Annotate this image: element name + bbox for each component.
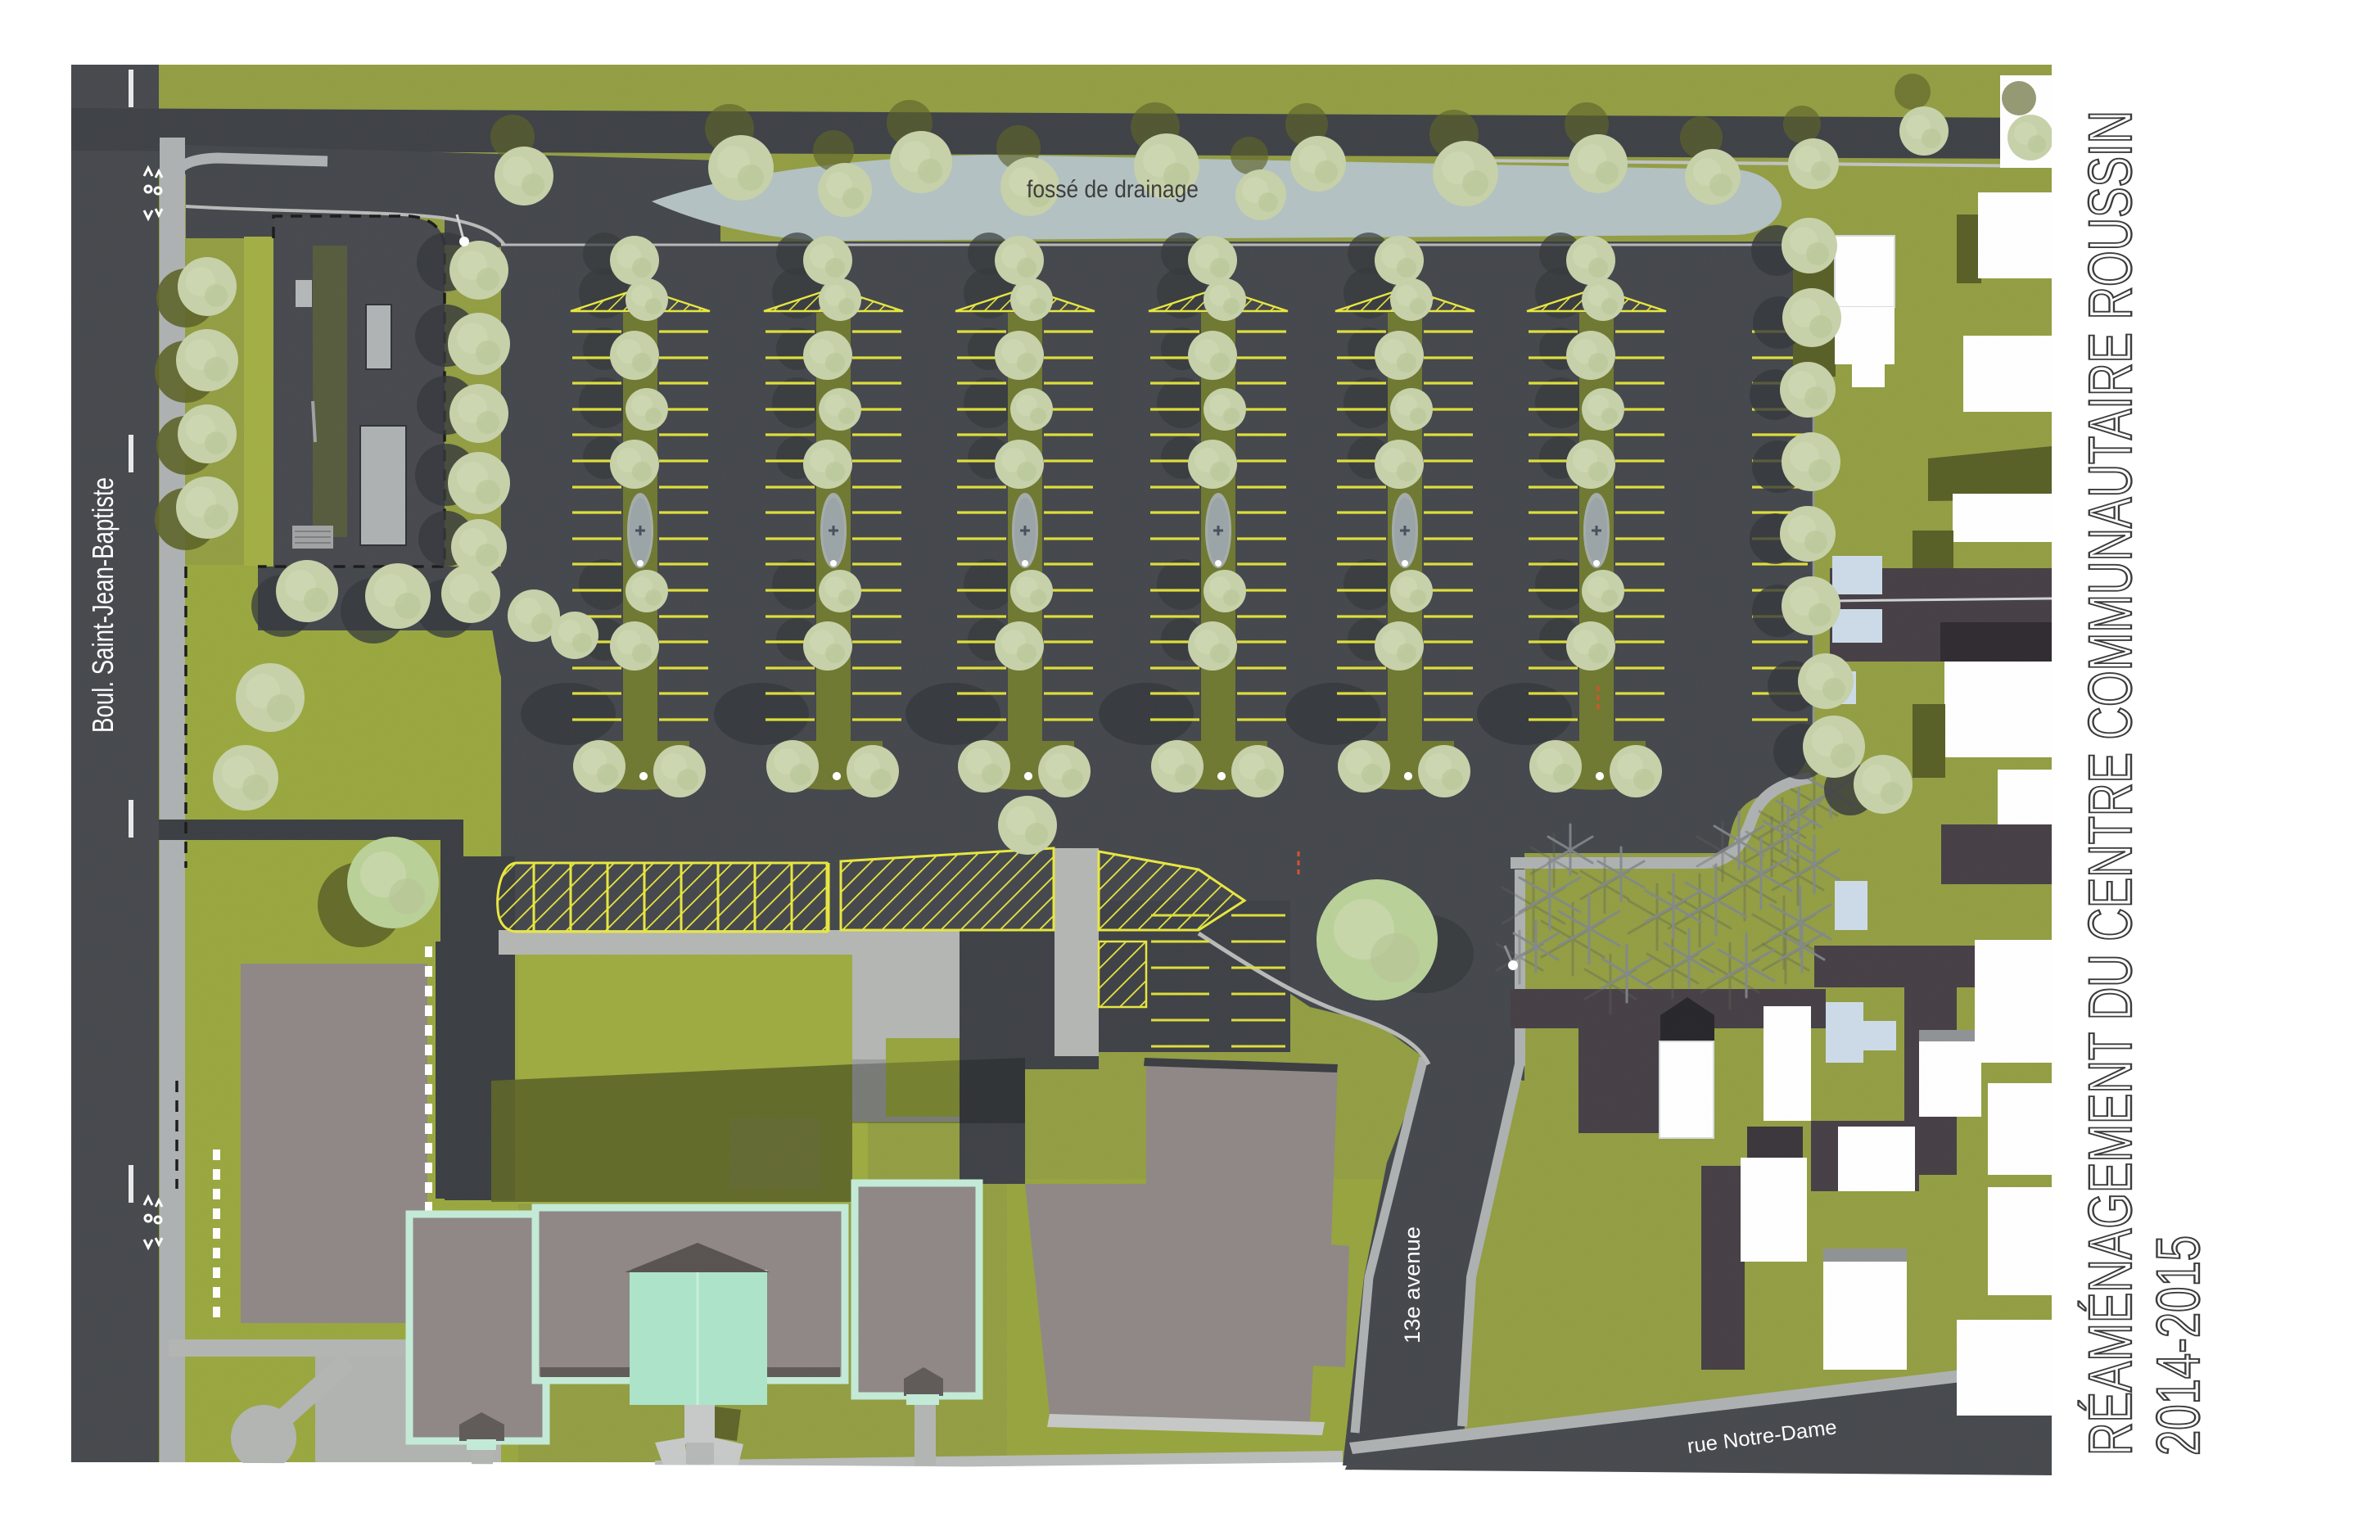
svg-text:RÉAMÉNAGEMENT DU CENTRE COMMUN: RÉAMÉNAGEMENT DU CENTRE COMMUNAUTAIRE RO…	[2076, 111, 2144, 1456]
svg-text:2014-2015: 2014-2015	[2144, 1235, 2212, 1456]
